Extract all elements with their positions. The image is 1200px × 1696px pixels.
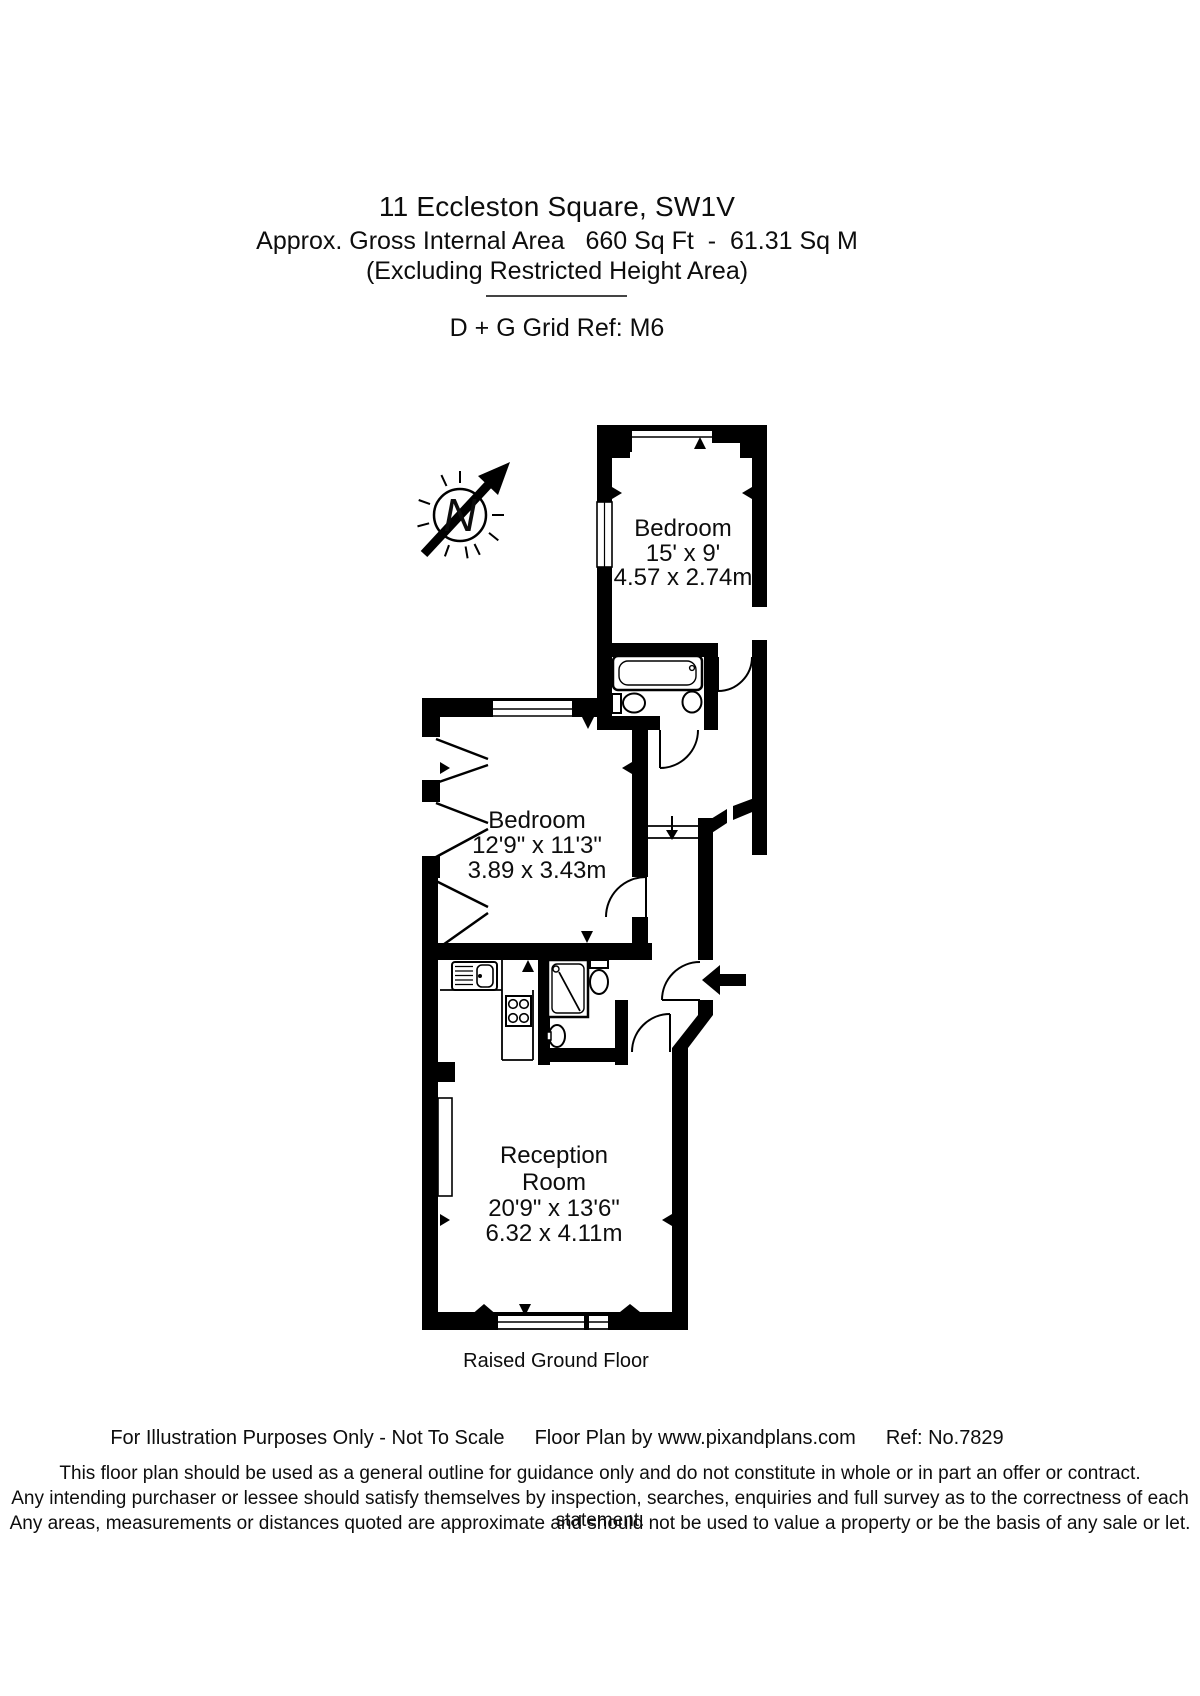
north-compass-icon: N	[418, 462, 511, 558]
disclaimer-line-1: This floor plan should be used as a gene…	[0, 1463, 1200, 1485]
bathroom-door	[660, 730, 698, 768]
toilet-icon	[590, 960, 608, 994]
top-bedroom-door	[718, 657, 752, 691]
kitchen-sink-icon	[452, 962, 497, 990]
svg-text:6.32 x 4.11m: 6.32 x 4.11m	[486, 1220, 623, 1247]
svg-text:12'9" x 11'3": 12'9" x 11'3"	[472, 832, 602, 859]
footer-credit-line: For Illustration Purposes Only - Not To …	[0, 1427, 1114, 1450]
plan-credit: Floor Plan by www.pixandplans.com	[535, 1427, 856, 1450]
room-label-top-bedroom: Bedroom 15' x 9' 4.57 x 2.74m	[614, 515, 753, 591]
bathtub-icon	[613, 656, 702, 690]
room-label-reception: Reception Room 20'9" x 13'6" 6.32 x 4.11…	[486, 1142, 623, 1247]
floor-label: Raised Ground Floor	[0, 1350, 1112, 1373]
svg-text:4.57 x 2.74m: 4.57 x 2.74m	[614, 564, 753, 591]
entrance-door	[662, 962, 700, 1000]
middle-bedroom-door	[606, 877, 646, 917]
toilet-icon	[612, 694, 645, 714]
shower-icon	[548, 960, 588, 1017]
svg-text:20'9" x 13'6": 20'9" x 13'6"	[488, 1195, 620, 1222]
illustration-note: For Illustration Purposes Only - Not To …	[110, 1427, 504, 1450]
disclaimer-line-3: Any areas, measurements or distances quo…	[0, 1513, 1200, 1535]
svg-text:15' x 9': 15' x 9'	[646, 540, 721, 567]
svg-text:Bedroom: Bedroom	[634, 515, 731, 542]
plan-reference: Ref: No.7829	[886, 1427, 1004, 1450]
hob-icon	[506, 996, 531, 1026]
svg-text:3.89 x 3.43m: 3.89 x 3.43m	[468, 857, 607, 884]
room-label-middle-bedroom: Bedroom 12'9" x 11'3" 3.89 x 3.43m	[468, 807, 607, 884]
wash-basin-icon	[683, 692, 702, 713]
svg-text:Reception: Reception	[500, 1142, 608, 1169]
svg-text:Room: Room	[522, 1169, 586, 1196]
svg-text:Bedroom: Bedroom	[488, 807, 585, 834]
entrance-arrow-icon	[702, 965, 746, 995]
reception-door	[632, 1014, 670, 1052]
north-label: N	[443, 489, 477, 541]
floorplan-page: 11 Eccleston Square, SW1V Approx. Gross …	[0, 0, 1200, 1696]
